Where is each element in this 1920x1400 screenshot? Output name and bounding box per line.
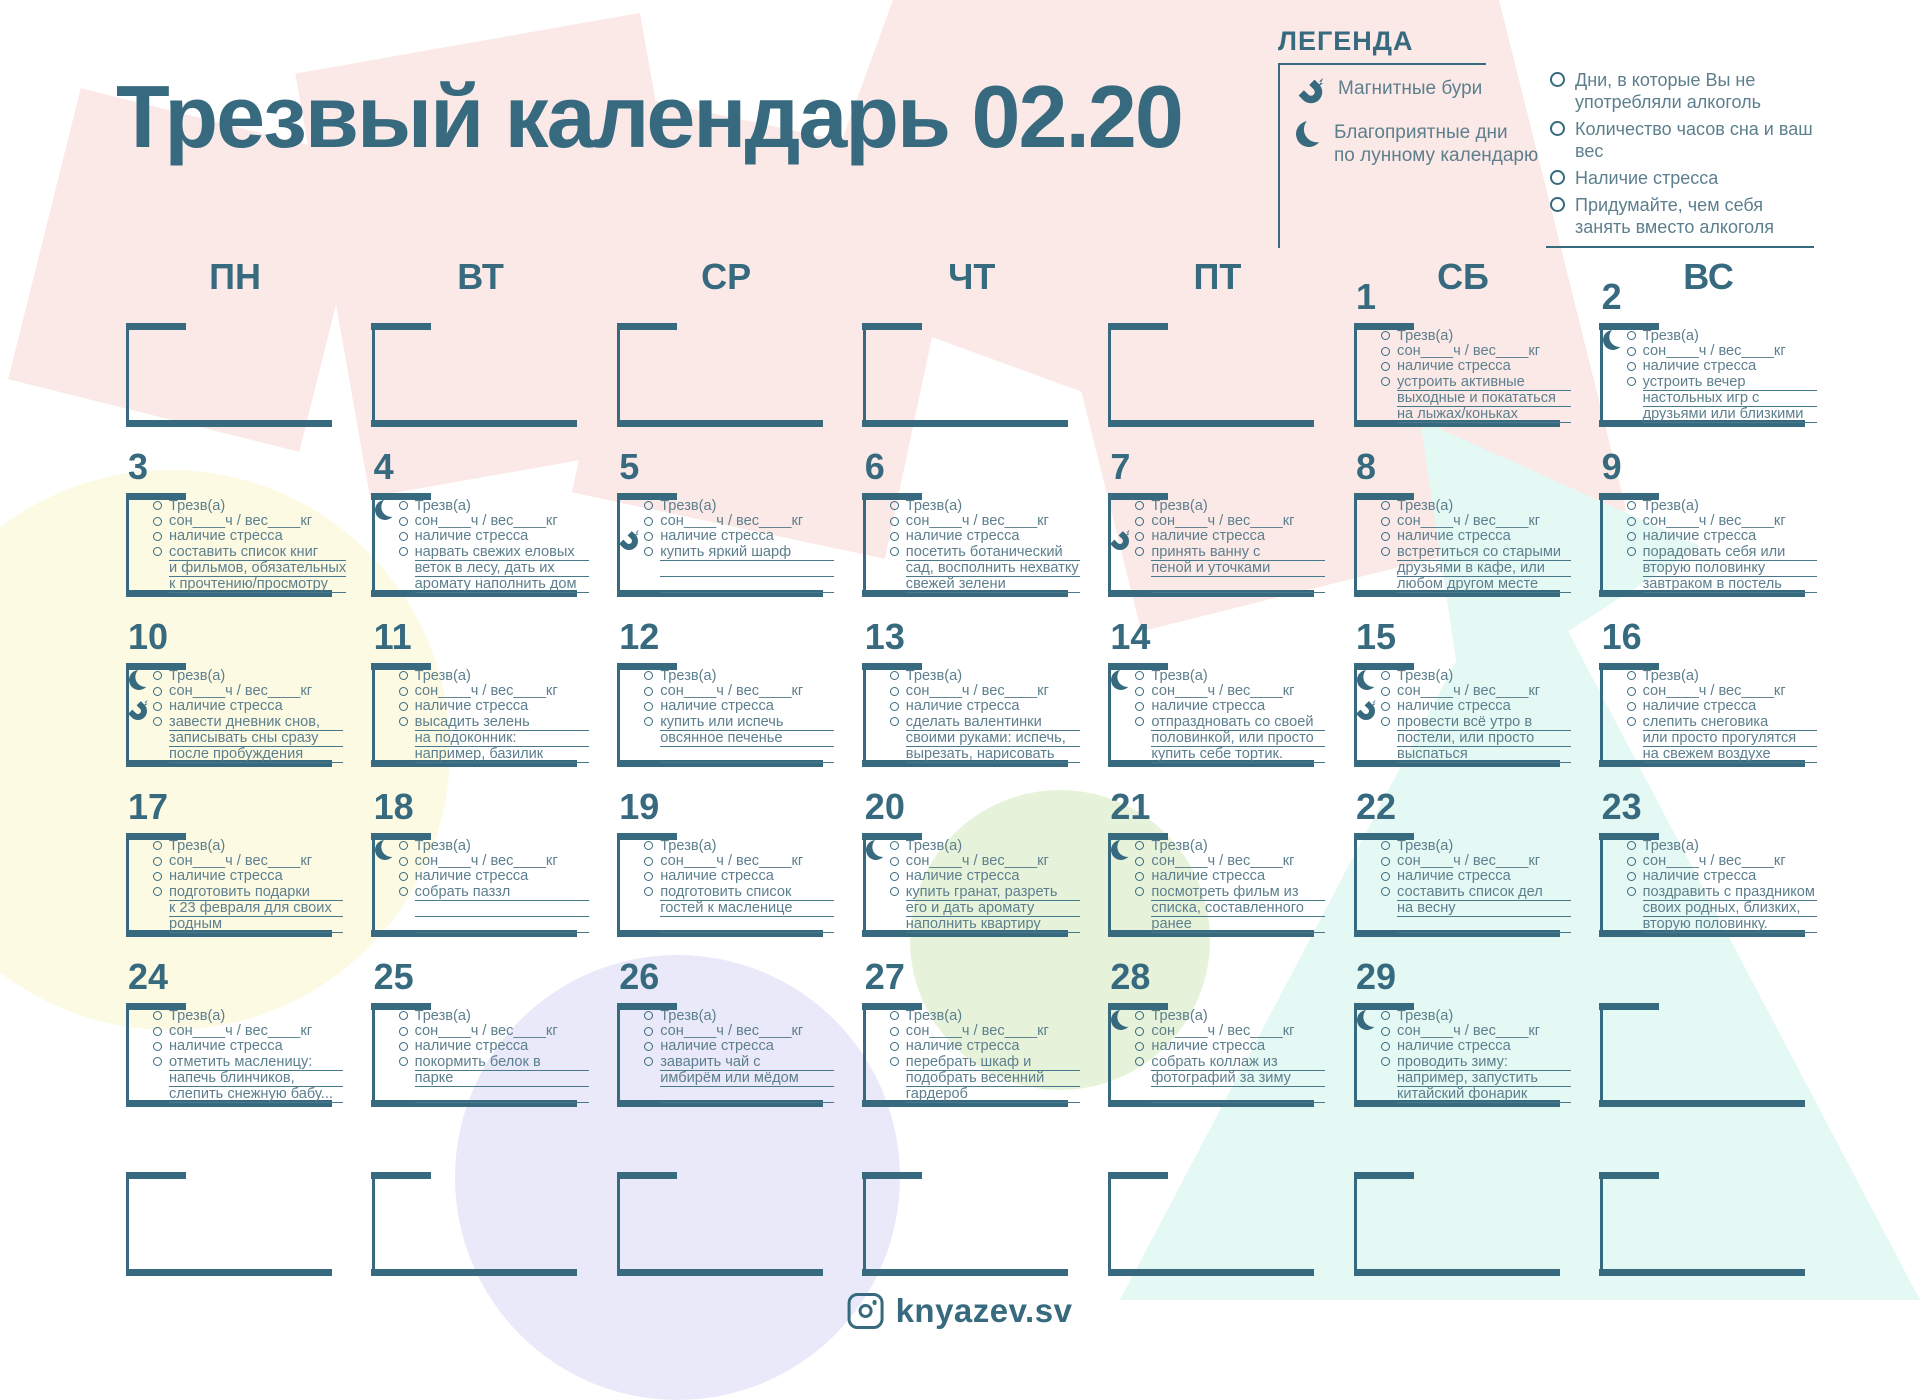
legend-item-magnetic-storms: Магнитные бури [1296, 77, 1546, 107]
checklist-item-label: наличие стресса [1397, 529, 1511, 544]
checklist-item-label: сон____ч / вес____кг [415, 684, 558, 699]
calendar-cell: Трезв(а)сон____ч / вес____кгналичие стре… [617, 1003, 851, 1100]
calendar-cell: Трезв(а)сон____ч / вес____кгналичие стре… [1354, 1003, 1588, 1100]
day-number: 4 [374, 449, 394, 485]
checklist-item-label: Трезв(а) [1397, 499, 1453, 514]
checklist-item: наличие стресса [153, 869, 358, 884]
task-line: устроить активные [1397, 375, 1571, 391]
task-item: поздравить с праздникомсвоих родных, бли… [1627, 885, 1832, 934]
checkbox-circle-icon [644, 671, 653, 680]
task-lines: поздравить с праздникомсвоих родных, бли… [1643, 885, 1817, 934]
checkbox-circle-icon [399, 532, 408, 541]
task-item: слепить снеговикаили просто прогулятсяна… [1627, 715, 1832, 764]
checkbox-circle-icon [1627, 517, 1636, 526]
calendar-content: Трезвый календарь 02.20 ЛЕГЕНДА Магнитны… [0, 0, 1920, 1357]
checklist-item: наличие стресса [1627, 699, 1832, 714]
legend-left-column: Магнитные бури Благоприятные дни по лунн… [1278, 65, 1546, 248]
checklist-item: Трезв(а) [1381, 1009, 1586, 1024]
task-line: свежей зелени [906, 577, 1080, 593]
task-item: порадовать себя иливторую половинкузавтр… [1627, 545, 1832, 594]
checkbox-circle-icon [890, 1042, 899, 1051]
checkbox-circle-icon [1627, 532, 1636, 541]
checkbox-circle-icon [1135, 1027, 1144, 1036]
task-lines: нарвать свежих еловыхветок в лесу, дать … [415, 545, 589, 594]
magnet-icon-wrap [126, 699, 150, 728]
checkbox-circle-icon [1627, 717, 1636, 726]
checklist-item: наличие стресса [1135, 1039, 1340, 1054]
checklist-item-label: сон____ч / вес____кг [169, 514, 312, 529]
checklist-item: наличие стресса [890, 1039, 1095, 1054]
task-line: завтраком в постель [1643, 577, 1817, 593]
checkbox-circle-icon [644, 857, 653, 866]
empty-cell [372, 323, 606, 420]
checklist-item: наличие стресса [890, 699, 1095, 714]
checklist-item: сон____ч / вес____кг [1381, 344, 1586, 359]
checklist-item-label: сон____ч / вес____кг [1643, 854, 1786, 869]
day-number: 10 [128, 619, 168, 655]
task-item: составить список книги фильмов, обязател… [153, 545, 358, 594]
checklist-item-label: Трезв(а) [660, 839, 716, 854]
circle-icon [1550, 72, 1565, 87]
checklist-item: наличие стресса [1381, 699, 1586, 714]
checklist-item-label: Трезв(а) [906, 499, 962, 514]
footer: knyazev.sv [848, 1292, 1073, 1330]
calendar-cell: Трезв(а)сон____ч / вес____кгналичие стре… [1600, 493, 1834, 590]
day-number: 7 [1110, 449, 1130, 485]
checkbox-circle-icon [399, 517, 408, 526]
task-line: напечь блинчиков, [169, 1071, 343, 1087]
day-number: 13 [865, 619, 905, 655]
checklist-item-label: Трезв(а) [415, 669, 471, 684]
task-line: подготовить список [660, 885, 834, 901]
task-item: отпраздновать со своейполовинкой, или пр… [1135, 715, 1340, 764]
checkbox-circle-icon [153, 717, 162, 726]
checklist-item: сон____ч / вес____кг [644, 514, 849, 529]
task-lines: проводить зиму:например, запуститькитайс… [1397, 1055, 1571, 1104]
checkbox-circle-icon [1135, 501, 1144, 510]
day-number: 24 [128, 959, 168, 995]
calendar-cell: Трезв(а)сон____ч / вес____кгналичие стре… [1354, 833, 1588, 930]
checklist-item-label: сон____ч / вес____кг [1643, 514, 1786, 529]
checkbox-circle-icon [153, 1011, 162, 1020]
cell-frame [863, 323, 1097, 420]
checklist-item-label: сон____ч / вес____кг [906, 514, 1049, 529]
checklist-item: Трезв(а) [1381, 669, 1586, 684]
checklist-item-label: Трезв(а) [415, 1009, 471, 1024]
checklist-item: сон____ч / вес____кг [153, 1024, 358, 1039]
task-line: порадовать себя или [1643, 545, 1817, 561]
circle-icon [1550, 170, 1565, 185]
weekday-label: ВС [1596, 256, 1822, 298]
checklist-item-label: наличие стресса [1151, 869, 1265, 884]
checkbox-circle-icon [890, 1057, 899, 1066]
checklist-item-label: Трезв(а) [660, 669, 716, 684]
task-line: слепить снежную бабу... [169, 1087, 343, 1103]
checklist-item-label: сон____ч / вес____кг [1151, 1024, 1294, 1039]
checklist-item: сон____ч / вес____кг [890, 1024, 1095, 1039]
day-number: 3 [128, 449, 148, 485]
checklist-item-label: сон____ч / вес____кг [415, 854, 558, 869]
checklist-item: сон____ч / вес____кг [890, 684, 1095, 699]
checklist-item-label: Трезв(а) [906, 669, 962, 684]
checklist-item: сон____ч / вес____кг [1627, 514, 1832, 529]
checkbox-circle-icon [890, 841, 899, 850]
checkbox-circle-icon [890, 717, 899, 726]
checklist-item: наличие стресса [644, 1039, 849, 1054]
checklist-item: Трезв(а) [1627, 499, 1832, 514]
day-number: 22 [1356, 789, 1396, 825]
legend-right-column: Дни, в которые Вы не употребляли алкогол… [1546, 65, 1814, 248]
calendar-cell: Трезв(а)сон____ч / вес____кгналичие стре… [863, 1003, 1097, 1100]
checkbox-circle-icon [1381, 547, 1390, 556]
checkbox-circle-icon [399, 1027, 408, 1036]
checklist-item-label: Трезв(а) [415, 839, 471, 854]
cell-frame [1108, 1172, 1342, 1269]
task-lines: посмотреть фильм изсписка, составленного… [1151, 885, 1325, 934]
checklist-item-label: наличие стресса [660, 529, 774, 544]
checklist-item-label: Трезв(а) [1643, 669, 1699, 684]
checklist: Трезв(а)сон____ч / вес____кгналичие стре… [1135, 669, 1340, 763]
checkbox-circle-icon [1381, 377, 1390, 386]
checkbox-circle-icon [1135, 887, 1144, 896]
calendar-cell: Трезв(а)сон____ч / вес____кгналичие стре… [617, 663, 851, 760]
task-item: составить список делна весну [1381, 885, 1586, 934]
checkbox-circle-icon [1381, 1011, 1390, 1020]
checklist-item: наличие стресса [399, 869, 604, 884]
checklist: Трезв(а)сон____ч / вес____кгналичие стре… [1627, 669, 1832, 763]
calendar-cell: Трезв(а)сон____ч / вес____кгналичие стре… [1108, 663, 1342, 760]
calendar-cell: Трезв(а)сон____ч / вес____кгналичие стре… [126, 833, 360, 930]
checklist: Трезв(а)сон____ч / вес____кгналичие стре… [153, 1009, 358, 1103]
cell-frame [372, 1172, 606, 1269]
checklist-item: сон____ч / вес____кг [153, 684, 358, 699]
checklist-item: наличие стресса [1627, 869, 1832, 884]
task-line: покормить белок в [415, 1055, 589, 1071]
checklist-item: сон____ч / вес____кг [644, 1024, 849, 1039]
checkbox-circle-icon [153, 1027, 162, 1036]
legend-item-label: Дни, в которые Вы не употребляли алкогол… [1575, 69, 1761, 113]
legend: ЛЕГЕНДА Магнитные бури Благоприятные дни… [1278, 26, 1814, 248]
checklist-item: Трезв(а) [1381, 329, 1586, 344]
task-line: его и дать аромату [906, 901, 1080, 917]
task-lines: составить список делна весну [1397, 885, 1571, 934]
checkbox-circle-icon [399, 717, 408, 726]
day-number: 28 [1110, 959, 1150, 995]
task-line [415, 1087, 589, 1103]
checklist-item: Трезв(а) [153, 669, 358, 684]
calendar-cell: Трезв(а)сон____ч / вес____кгналичие стре… [372, 663, 606, 760]
calendar-cell: Трезв(а)сон____ч / вес____кгналичие стре… [617, 833, 851, 930]
circle-icon [1550, 121, 1565, 136]
task-line: на подоконник: [415, 731, 589, 747]
checkbox-circle-icon [1135, 717, 1144, 726]
task-line: списка, составленного [1151, 901, 1325, 917]
task-line: родным [169, 917, 343, 933]
cell-frame [126, 1172, 360, 1269]
task-lines: купить яркий шарф [660, 545, 834, 594]
checklist-item: Трезв(а) [644, 1009, 849, 1024]
task-line: постели, или просто [1397, 731, 1571, 747]
checklist-item-label: наличие стресса [1151, 529, 1265, 544]
checklist-item: сон____ч / вес____кг [1135, 514, 1340, 529]
sober-calendar-poster: { "title": "Трезвый календарь 02.20", "l… [0, 0, 1920, 1357]
task-item: завести дневник снов,записывать сны сраз… [153, 715, 358, 764]
calendar-cell: Трезв(а)сон____ч / вес____кгналичие стре… [863, 833, 1097, 930]
task-lines: подготовить списокгостей к масленице [660, 885, 834, 934]
checkbox-circle-icon [153, 547, 162, 556]
checkbox-circle-icon [153, 872, 162, 881]
checklist-item: сон____ч / вес____кг [890, 854, 1095, 869]
task-line: собрать коллаж из [1151, 1055, 1325, 1071]
checkbox-circle-icon [1135, 702, 1144, 711]
task-line: отпраздновать со своей [1151, 715, 1325, 731]
checklist-item-label: сон____ч / вес____кг [169, 684, 312, 699]
checklist-item: наличие стресса [1627, 529, 1832, 544]
checklist: Трезв(а)сон____ч / вес____кгналичие стре… [1135, 839, 1340, 933]
checklist-item-label: наличие стресса [415, 1039, 529, 1054]
page-title: Трезвый календарь 02.20 [116, 66, 1182, 168]
checklist-item-label: сон____ч / вес____кг [660, 514, 803, 529]
calendar-cell: Трезв(а)сон____ч / вес____кгналичие стре… [617, 493, 851, 590]
calendar-cell: Трезв(а)сон____ч / вес____кгналичие стре… [372, 833, 606, 930]
calendar-cell: Трезв(а)сон____ч / вес____кгналичие стре… [1108, 493, 1342, 590]
checklist-item-label: сон____ч / вес____кг [1397, 514, 1540, 529]
checkbox-circle-icon [153, 1042, 162, 1051]
magnet-icon-wrap [1354, 699, 1378, 728]
checkbox-circle-icon [1381, 841, 1390, 850]
legend-item-activity: Придумайте, чем себя занять вместо алког… [1550, 194, 1814, 238]
legend-heading: ЛЕГЕНДА [1278, 26, 1486, 65]
checkbox-circle-icon [153, 532, 162, 541]
checkbox-circle-icon [399, 887, 408, 896]
calendar-cell: Трезв(а)сон____ч / вес____кгналичие стре… [372, 1003, 606, 1100]
task-lines: отпраздновать со своейполовинкой, или пр… [1151, 715, 1325, 764]
checkbox-circle-icon [644, 501, 653, 510]
checklist-item: Трезв(а) [153, 499, 358, 514]
checkbox-circle-icon [644, 1042, 653, 1051]
task-lines: завести дневник снов,записывать сны сраз… [169, 715, 343, 764]
empty-cell [617, 323, 851, 420]
checkbox-circle-icon [399, 841, 408, 850]
checklist-item-label: наличие стресса [906, 529, 1020, 544]
checkbox-circle-icon [399, 501, 408, 510]
checklist-item: Трезв(а) [1135, 499, 1340, 514]
task-line: парке [415, 1071, 589, 1087]
task-item: встретиться со старымидрузьями в кафе, и… [1381, 545, 1586, 594]
checkbox-circle-icon [1381, 362, 1390, 371]
checklist-item: сон____ч / вес____кг [890, 514, 1095, 529]
checklist-item-label: наличие стресса [906, 1039, 1020, 1054]
checkbox-circle-icon [153, 887, 162, 896]
task-line: подготовить подарки [169, 885, 343, 901]
task-line [1151, 577, 1325, 593]
task-line: купить или испечь [660, 715, 834, 731]
task-lines: провести всё утро впостели, или простовы… [1397, 715, 1571, 764]
task-item: проводить зиму:например, запуститькитайс… [1381, 1055, 1586, 1104]
checklist-item-label: Трезв(а) [169, 669, 225, 684]
empty-cell [1600, 1003, 1834, 1100]
task-line: вторую половинку [1643, 561, 1817, 577]
checklist-item-label: наличие стресса [660, 869, 774, 884]
cell-frame [1600, 1003, 1834, 1100]
checkbox-circle-icon [890, 857, 899, 866]
circle-icon [1550, 197, 1565, 212]
checkbox-circle-icon [153, 517, 162, 526]
checkbox-circle-icon [890, 671, 899, 680]
checkbox-circle-icon [399, 702, 408, 711]
checklist-item-label: Трезв(а) [906, 1009, 962, 1024]
checkbox-circle-icon [1627, 872, 1636, 881]
checklist-item: сон____ч / вес____кг [1135, 854, 1340, 869]
checkbox-circle-icon [1381, 532, 1390, 541]
checkbox-circle-icon [1381, 857, 1390, 866]
task-item: перебрать шкаф иподобрать весеннийгардер… [890, 1055, 1095, 1104]
checkbox-circle-icon [1135, 1011, 1144, 1020]
day-number: 2 [1602, 279, 1622, 315]
task-item: устроить вечернастольных игр сдрузьями и… [1627, 375, 1832, 424]
checkbox-circle-icon [153, 857, 162, 866]
calendar-cell: Трезв(а)сон____ч / вес____кгналичие стре… [863, 663, 1097, 760]
task-item: заварить чай симбирём или мёдом [644, 1055, 849, 1104]
task-item: провести всё утро впостели, или простовы… [1381, 715, 1586, 764]
task-item: принять ванну спеной и уточками [1135, 545, 1340, 594]
instagram-icon [848, 1293, 884, 1329]
legend-item-label: Придумайте, чем себя занять вместо алког… [1575, 194, 1774, 238]
checklist-item-label: сон____ч / вес____кг [1643, 684, 1786, 699]
day-number: 27 [865, 959, 905, 995]
legend-item-sleep-weight: Количество часов сна и ваш вес [1550, 118, 1814, 162]
checklist-item-label: сон____ч / вес____кг [1397, 854, 1540, 869]
moon-icon [1293, 118, 1326, 151]
magnet-icon [1108, 529, 1132, 553]
checkbox-circle-icon [1381, 1042, 1390, 1051]
checkbox-circle-icon [1381, 702, 1390, 711]
checklist-item-label: сон____ч / вес____кг [1397, 684, 1540, 699]
checklist-item: Трезв(а) [1627, 839, 1832, 854]
task-line: после пробуждения [169, 747, 343, 763]
checkbox-circle-icon [153, 501, 162, 510]
task-line [415, 917, 589, 933]
day-number: 5 [619, 449, 639, 485]
checklist-item-label: сон____ч / вес____кг [660, 1024, 803, 1039]
task-line: принять ванну с [1151, 545, 1325, 561]
magnet-icon-wrap [1108, 529, 1132, 558]
checklist-item-label: наличие стресса [1643, 699, 1757, 714]
checklist-item: наличие стресса [890, 529, 1095, 544]
task-line: купить себе тортик. [1151, 747, 1325, 763]
legend-item-label: Наличие стресса [1575, 167, 1718, 189]
checklist-item: наличие стресса [399, 699, 604, 714]
checkbox-circle-icon [1627, 887, 1636, 896]
calendar-cell: Трезв(а)сон____ч / вес____кгналичие стре… [1108, 1003, 1342, 1100]
checkbox-circle-icon [399, 1042, 408, 1051]
checklist-item-label: наличие стресса [1643, 359, 1757, 374]
checklist-item-label: Трезв(а) [169, 839, 225, 854]
empty-cell [1354, 1172, 1588, 1269]
task-lines: устроить вечернастольных игр сдрузьями и… [1643, 375, 1817, 424]
checkbox-circle-icon [644, 1011, 653, 1020]
checkbox-circle-icon [890, 887, 899, 896]
checklist: Трезв(а)сон____ч / вес____кгналичие стре… [644, 499, 849, 593]
task-lines: покормить белок впарке [415, 1055, 589, 1104]
checklist-item: сон____ч / вес____кг [1627, 344, 1832, 359]
cell-frame [372, 323, 606, 420]
checklist-item-label: наличие стресса [1397, 359, 1511, 374]
checkbox-circle-icon [890, 517, 899, 526]
task-item: купить гранат, разретьего и дать аромату… [890, 885, 1095, 934]
checklist-item: сон____ч / вес____кг [399, 684, 604, 699]
calendar-cell: Трезв(а)сон____ч / вес____кгналичие стре… [1354, 493, 1588, 590]
checklist: Трезв(а)сон____ч / вес____кгналичие стре… [644, 1009, 849, 1103]
day-number: 23 [1602, 789, 1642, 825]
checkbox-circle-icon [1627, 377, 1636, 386]
checklist-item-label: Трезв(а) [1151, 669, 1207, 684]
calendar-cell: Трезв(а)сон____ч / вес____кгналичие стре… [1108, 833, 1342, 930]
checklist-item-label: Трезв(а) [1643, 329, 1699, 344]
checklist: Трезв(а)сон____ч / вес____кгналичие стре… [1381, 1009, 1586, 1103]
checklist-item: сон____ч / вес____кг [399, 854, 604, 869]
checklist: Трезв(а)сон____ч / вес____кгналичие стре… [1627, 329, 1832, 423]
checklist-item: Трезв(а) [399, 669, 604, 684]
checklist-item: сон____ч / вес____кг [153, 854, 358, 869]
task-line: устроить вечер [1643, 375, 1817, 391]
checkbox-circle-icon [890, 1027, 899, 1036]
task-line: настольных игр с [1643, 391, 1817, 407]
checkbox-circle-icon [1135, 872, 1144, 881]
task-line: завести дневник снов, [169, 715, 343, 731]
checklist-item-label: Трезв(а) [169, 499, 225, 514]
checklist-item-label: сон____ч / вес____кг [1397, 344, 1540, 359]
checklist-item: сон____ч / вес____кг [1381, 854, 1586, 869]
task-line: например, запустить [1397, 1071, 1571, 1087]
day-number: 11 [374, 619, 412, 655]
checklist-item-label: сон____ч / вес____кг [1397, 1024, 1540, 1039]
task-lines: купить или испечьовсянное печенье [660, 715, 834, 764]
task-line: купить гранат, разреть [906, 885, 1080, 901]
task-line: аромату наполнить дом [415, 577, 589, 593]
task-line: подобрать весенний [906, 1071, 1080, 1087]
checklist-item: Трезв(а) [153, 1009, 358, 1024]
checklist-item: Трезв(а) [1381, 499, 1586, 514]
checklist-item-label: сон____ч / вес____кг [415, 514, 558, 529]
day-number: 15 [1356, 619, 1396, 655]
task-item: нарвать свежих еловыхветок в лесу, дать … [399, 545, 604, 594]
checklist-item: Трезв(а) [644, 499, 849, 514]
checkbox-circle-icon [1381, 687, 1390, 696]
day-number: 18 [374, 789, 414, 825]
task-line: фотографий за зиму [1151, 1071, 1325, 1087]
task-line: сад, восполнить нехватку [906, 561, 1080, 577]
checklist-item-label: Трезв(а) [660, 499, 716, 514]
day-number: 1 [1356, 279, 1376, 315]
task-lines: устроить активныевыходные и покататьсяна… [1397, 375, 1571, 424]
checkbox-circle-icon [890, 1011, 899, 1020]
checklist-item-label: наличие стресса [1643, 529, 1757, 544]
task-line: записывать сны сразу [169, 731, 343, 747]
calendar-cell: Трезв(а)сон____ч / вес____кгналичие стре… [1354, 663, 1588, 760]
task-item: устроить активныевыходные и покататьсяна… [1381, 375, 1586, 424]
checklist-item: сон____ч / вес____кг [644, 854, 849, 869]
task-line: перебрать шкаф и [906, 1055, 1080, 1071]
checklist: Трезв(а)сон____ч / вес____кгналичие стре… [644, 669, 849, 763]
task-item: посетить ботаническийсад, восполнить нех… [890, 545, 1095, 594]
task-line [415, 901, 589, 917]
checklist-item: Трезв(а) [1627, 329, 1832, 344]
checklist-item-label: наличие стресса [169, 869, 283, 884]
checklist-item: Трезв(а) [399, 1009, 604, 1024]
checklist-item: сон____ч / вес____кг [153, 514, 358, 529]
task-line: составить список книг [169, 545, 346, 561]
